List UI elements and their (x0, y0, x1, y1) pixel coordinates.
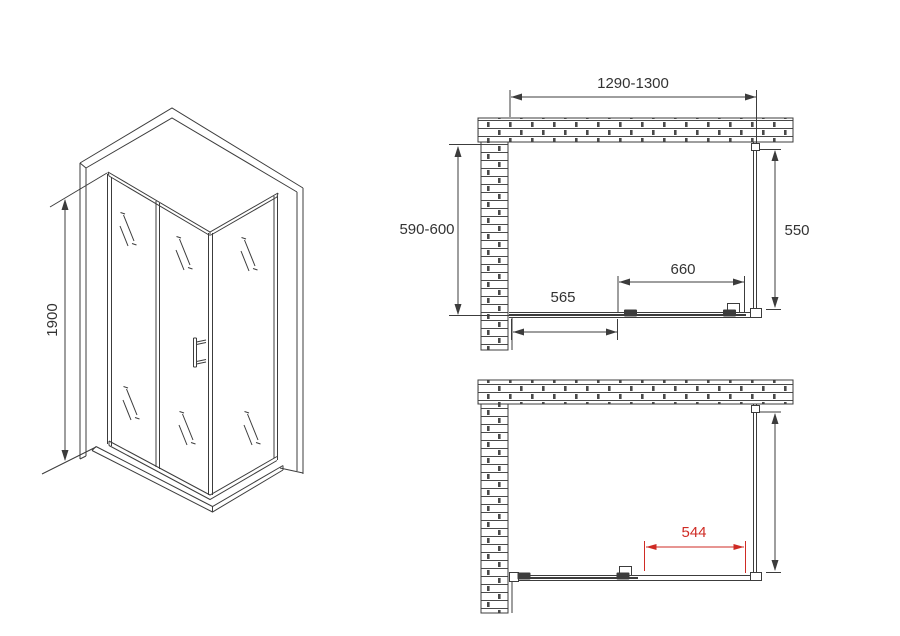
brick-wall-horizontal (478, 380, 793, 404)
side-glass-panel (754, 142, 757, 313)
bottom-plan-view: 544 (478, 380, 793, 613)
door-roller (518, 573, 531, 580)
rail-track (509, 576, 760, 614)
door-roller (723, 310, 736, 317)
dim-height-1900: 1900 (44, 173, 107, 461)
dim-height-label: 1900 (44, 303, 61, 336)
side-glass-panel (754, 404, 757, 577)
door-roller (624, 310, 637, 317)
brick-wall-horizontal (478, 118, 793, 142)
technical-drawing: 1900 (0, 0, 900, 636)
panel-wall-bracket (752, 144, 760, 151)
dim-opening-label: 544 (681, 524, 706, 541)
door-handle (194, 338, 207, 367)
dim-arrow-up (62, 199, 69, 210)
sliding-door-open (510, 567, 762, 582)
wall-corner-3d (80, 108, 303, 474)
end-bracket (510, 573, 519, 582)
floor-line (42, 447, 96, 474)
brick-wall-vertical (481, 404, 508, 613)
dim-arrow-down (62, 450, 69, 461)
dim-side-panel: 550 (759, 150, 810, 310)
dim-width-label: 1290-1300 (597, 75, 669, 92)
corner-connector (751, 309, 762, 318)
rail-track (509, 313, 760, 351)
dim-side-panel-label: 550 (784, 222, 809, 239)
dim-depth-label: 590-600 (399, 221, 454, 238)
dim-side-unlabeled (759, 412, 781, 573)
iso-view: 1900 (42, 108, 303, 512)
dim-fixed-panel-label: 565 (550, 289, 575, 306)
dim-opening: 544 (645, 524, 746, 573)
door-roller (617, 573, 630, 580)
dim-door-label: 660 (670, 261, 695, 278)
top-plan-view: 1290-1300 590-600 550 660 (399, 75, 809, 350)
shower-tray (92, 441, 283, 512)
dim-door: 660 (618, 261, 745, 312)
enclosure-top-frame (108, 172, 278, 236)
glass-reflection-marks (120, 213, 261, 446)
corner-connector (751, 573, 762, 581)
panel-wall-bracket (752, 406, 760, 413)
brick-wall-vertical (481, 142, 508, 350)
